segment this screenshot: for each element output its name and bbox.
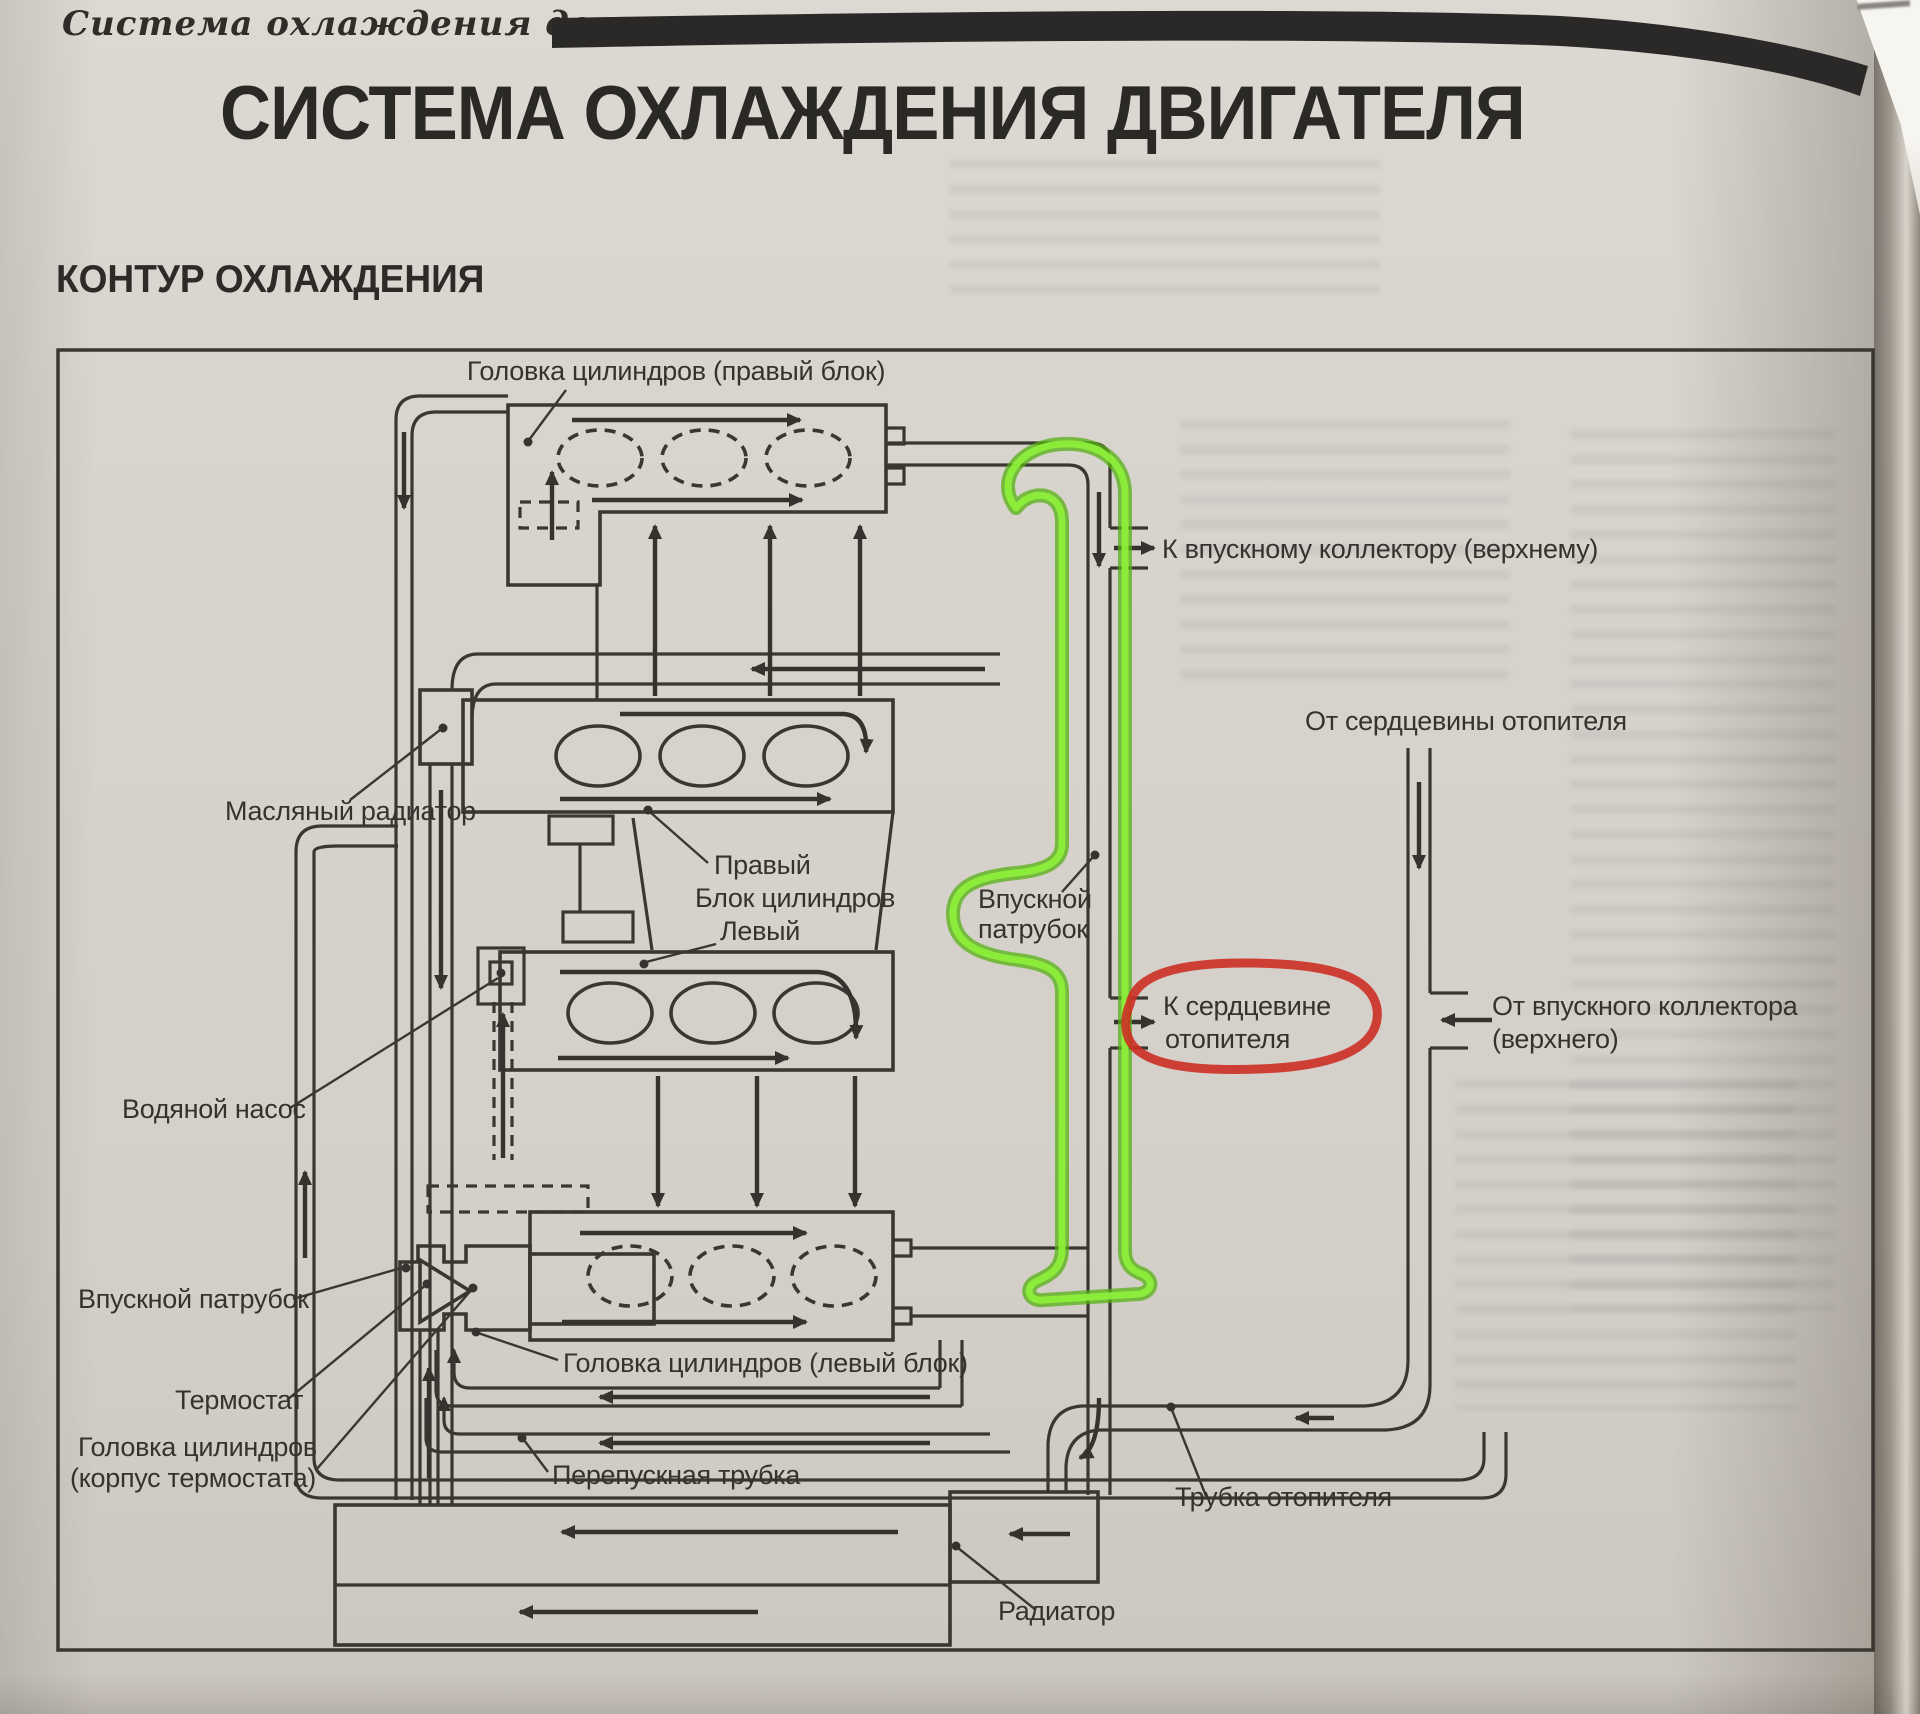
label-head-thermostat-1: Головка цилиндров	[78, 1432, 317, 1462]
main-outlet-pipe	[886, 443, 1154, 1495]
heater-pipes	[1048, 748, 1492, 1492]
cylinder-head-left-block	[530, 1212, 1088, 1340]
label-to-heater-core-1: К сердцевине	[1163, 991, 1331, 1021]
label-oil-radiator: Масляный радиатор	[225, 796, 476, 826]
label-radiator: Радиатор	[998, 1596, 1115, 1626]
label-heater-pipe: Трубка отопителя	[1175, 1482, 1392, 1512]
green-highlighter-trace	[953, 444, 1150, 1300]
cylinder-block-left	[500, 952, 893, 1070]
label-intake-pipe-center-2: патрубок	[978, 914, 1088, 944]
label-bypass-pipe: Перепускная трубка	[552, 1460, 801, 1490]
label-from-heater-core: От сердцевины отопителя	[1305, 706, 1627, 736]
label-to-intake-manifold: К впускному коллектору (верхнему)	[1162, 534, 1598, 564]
label-intake-pipe-center-1: Впускной	[978, 884, 1092, 914]
label-cylinder-block: Блок цилиндров	[695, 883, 895, 913]
label-water-pump: Водяной насос	[122, 1094, 306, 1124]
label-head-left: Головка цилиндров (левый блок)	[563, 1348, 968, 1378]
label-bank-left: Левый	[720, 916, 800, 946]
cylinder-block-right	[463, 700, 893, 812]
coolant-down-arrows	[658, 1076, 855, 1206]
label-from-intake-manifold-2: (верхнего)	[1492, 1024, 1618, 1054]
label-bank-right: Правый	[714, 850, 810, 880]
book-page: Система охлаждения двигателя СИСТЕМА ОХЛ…	[0, 0, 1920, 1714]
left-fittings	[549, 816, 633, 942]
cylinder-head-right-block	[508, 405, 904, 700]
label-to-heater-core-2: отопителя	[1165, 1024, 1290, 1054]
label-thermostat: Термостат	[175, 1385, 303, 1415]
label-head-right: Головка цилиндров (правый блок)	[467, 356, 885, 386]
cooling-circuit-diagram: Головка цилиндров (правый блок) К впускн…	[0, 0, 1920, 1714]
label-from-intake-manifold-1: От впускного коллектора	[1492, 991, 1799, 1021]
label-intake-pipe-left: Впускной патрубок	[78, 1284, 309, 1314]
label-head-thermostat-2: (корпус термостата)	[70, 1463, 316, 1493]
